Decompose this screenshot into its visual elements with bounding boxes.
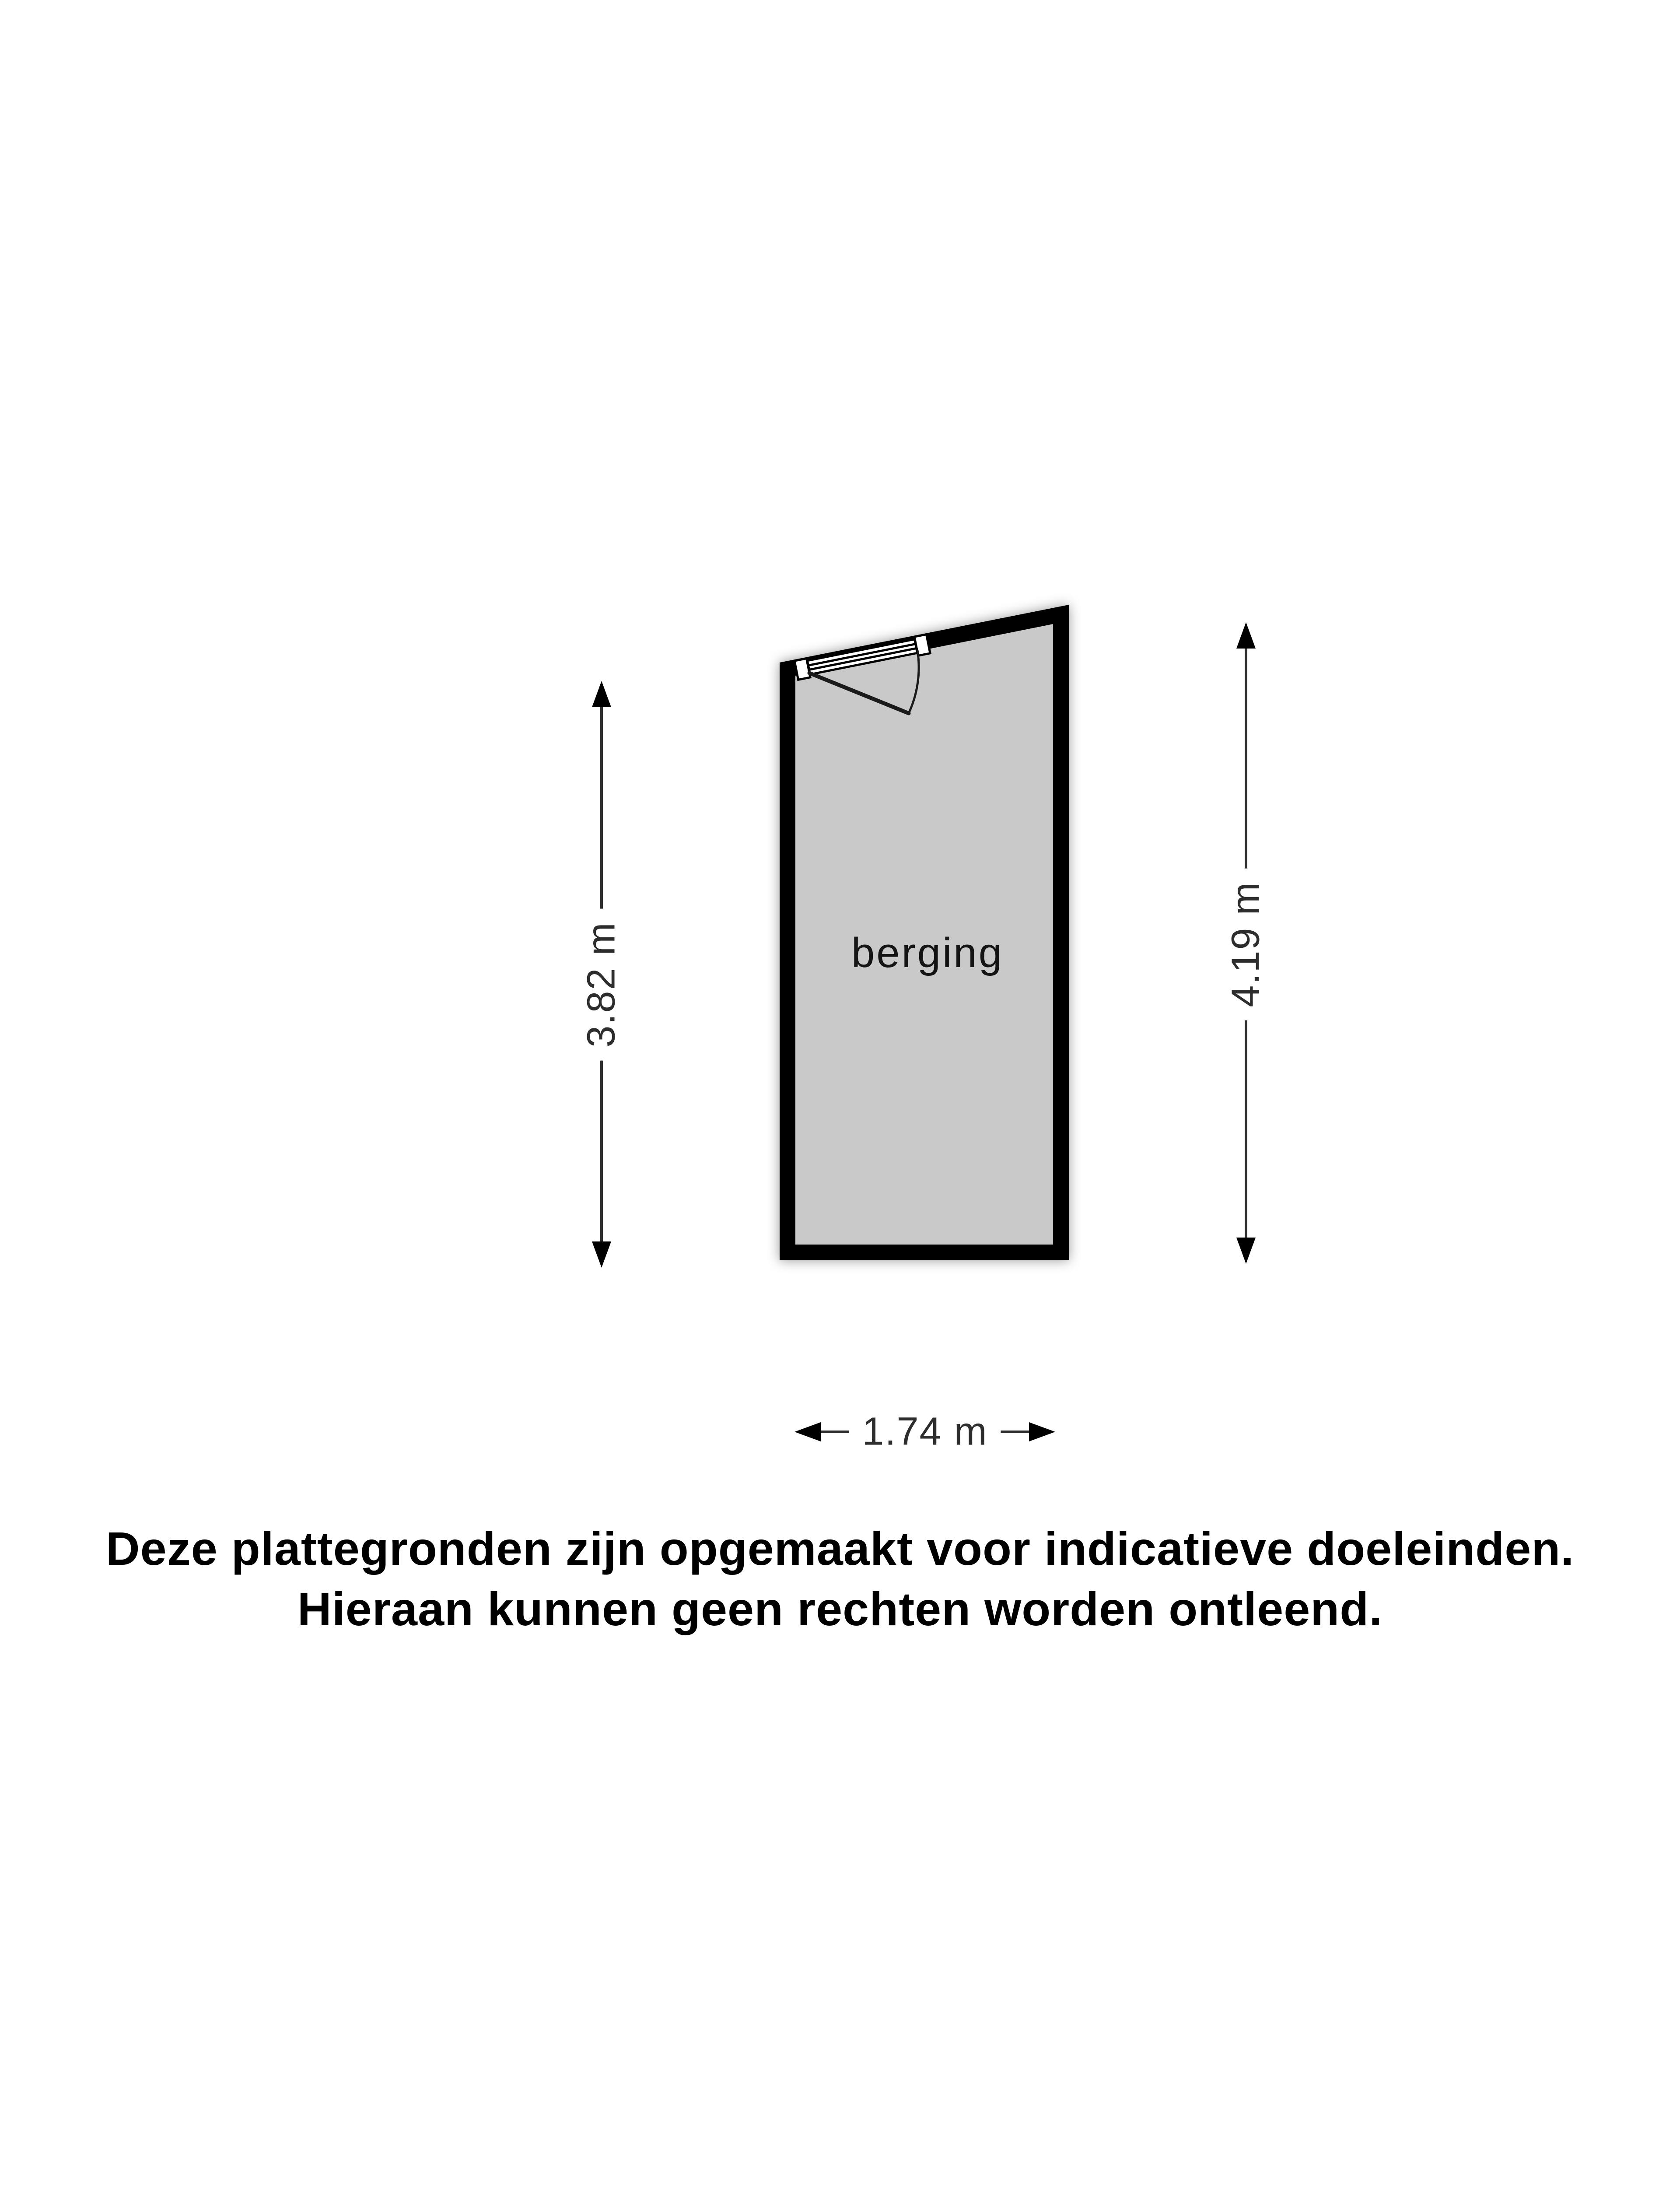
floor-plan-page: berging 3.82 m 4.19 m 1.74 m Deze platte… <box>0 0 1680 2188</box>
dimension-label-bottom: 1.74 m <box>849 1406 1001 1458</box>
disclaimer-line-1: Deze plattegronden zijn opgemaakt voor i… <box>0 1518 1680 1579</box>
room-label: berging <box>851 929 1004 977</box>
dimension-label-left: 3.82 m <box>576 908 628 1060</box>
dimension-label-right: 4.19 m <box>1220 868 1272 1020</box>
disclaimer-line-2: Hieraan kunnen geen rechten worden ontle… <box>0 1579 1680 1639</box>
door-jamb-hinge <box>794 659 810 680</box>
floor-plan-canvas <box>0 0 1680 2188</box>
disclaimer-text: Deze plattegronden zijn opgemaakt voor i… <box>0 1518 1680 1639</box>
